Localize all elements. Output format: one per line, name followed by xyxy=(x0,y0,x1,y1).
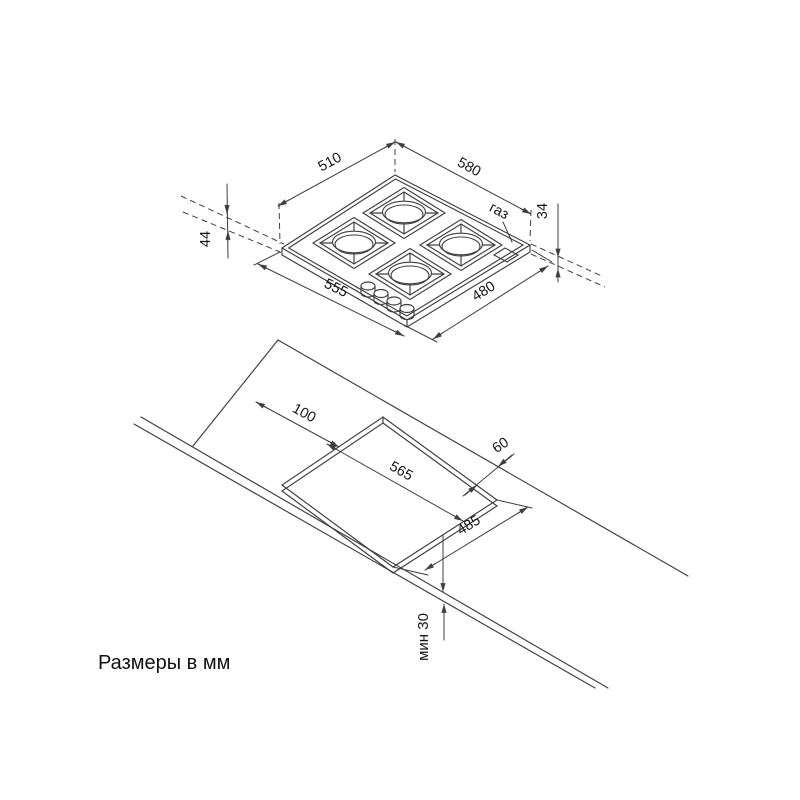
dim-44: 44 xyxy=(198,184,228,258)
worktop-left-edge xyxy=(193,340,278,446)
worktop-front-edge-bottom xyxy=(134,424,595,688)
gas-label: газ xyxy=(486,200,511,223)
cutout-outer-rim xyxy=(282,417,497,567)
dim-min-30-label: мин 30 xyxy=(415,613,432,661)
dim-60-label: 60 xyxy=(490,435,512,457)
worktop-plane-dashes-right xyxy=(531,244,605,287)
dim-34-label: 34 xyxy=(535,203,551,219)
hob-isometric-view: 510 580 555 480 xyxy=(181,139,605,342)
worktop-cutout-view: 100 565 485 60 мин 30 xyxy=(134,340,688,688)
worktop-outline xyxy=(134,340,688,688)
dim-485: 485 xyxy=(393,500,532,575)
dim-485-label: 485 xyxy=(454,512,483,538)
dim-44-label: 44 xyxy=(198,231,214,247)
installation-diagram: 510 580 555 480 xyxy=(0,0,800,800)
worktop-front-edge-top xyxy=(141,417,608,688)
dim-100: 100 xyxy=(256,401,339,447)
diagram-svg: 510 580 555 480 xyxy=(0,0,800,800)
units-footnote: Размеры в мм xyxy=(98,652,230,674)
worktop-back-edge xyxy=(278,340,688,576)
dim-34: 34 xyxy=(535,203,558,282)
dim-480-label: 480 xyxy=(469,278,498,304)
dim-min-30: мин 30 xyxy=(415,535,444,661)
dim-565: 565 xyxy=(327,444,463,521)
worktop-plane-dashes-left xyxy=(181,196,285,254)
cutout-inner-rim xyxy=(282,423,497,573)
dim-580-label: 580 xyxy=(454,155,483,181)
